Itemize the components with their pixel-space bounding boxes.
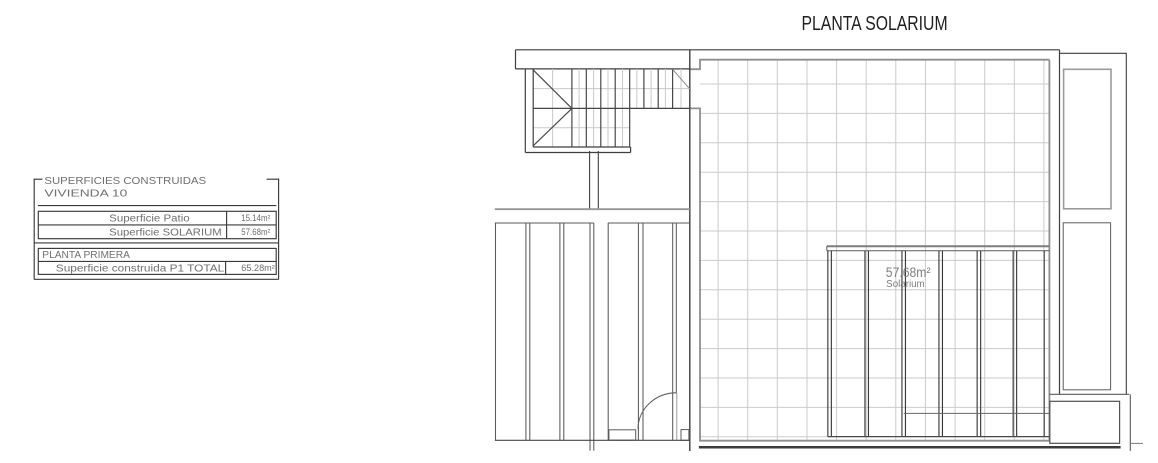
svg-text:VIVIENDA 10: VIVIENDA 10 [44,188,128,199]
svg-text:SUPERFICIES CONSTRUIDAS: SUPERFICIES CONSTRUIDAS [44,176,206,187]
svg-text:57.68m²: 57.68m² [886,264,931,280]
svg-text:Superficie construida P1 TOTAL: Superficie construida P1 TOTAL [56,264,225,275]
svg-text:15.14m²: 15.14m² [241,213,270,223]
svg-text:57.68m²: 57.68m² [241,227,270,237]
svg-text:PLANTA PRIMERA: PLANTA PRIMERA [42,250,130,261]
svg-text:Solarium: Solarium [886,279,925,290]
svg-text:Superficie Patio: Superficie Patio [109,214,190,225]
svg-text:PLANTA SOLARIUM: PLANTA SOLARIUM [802,12,948,35]
svg-text:65.28m²: 65.28m² [241,263,275,273]
svg-text:Superficie SOLARIUM: Superficie SOLARIUM [109,227,222,238]
